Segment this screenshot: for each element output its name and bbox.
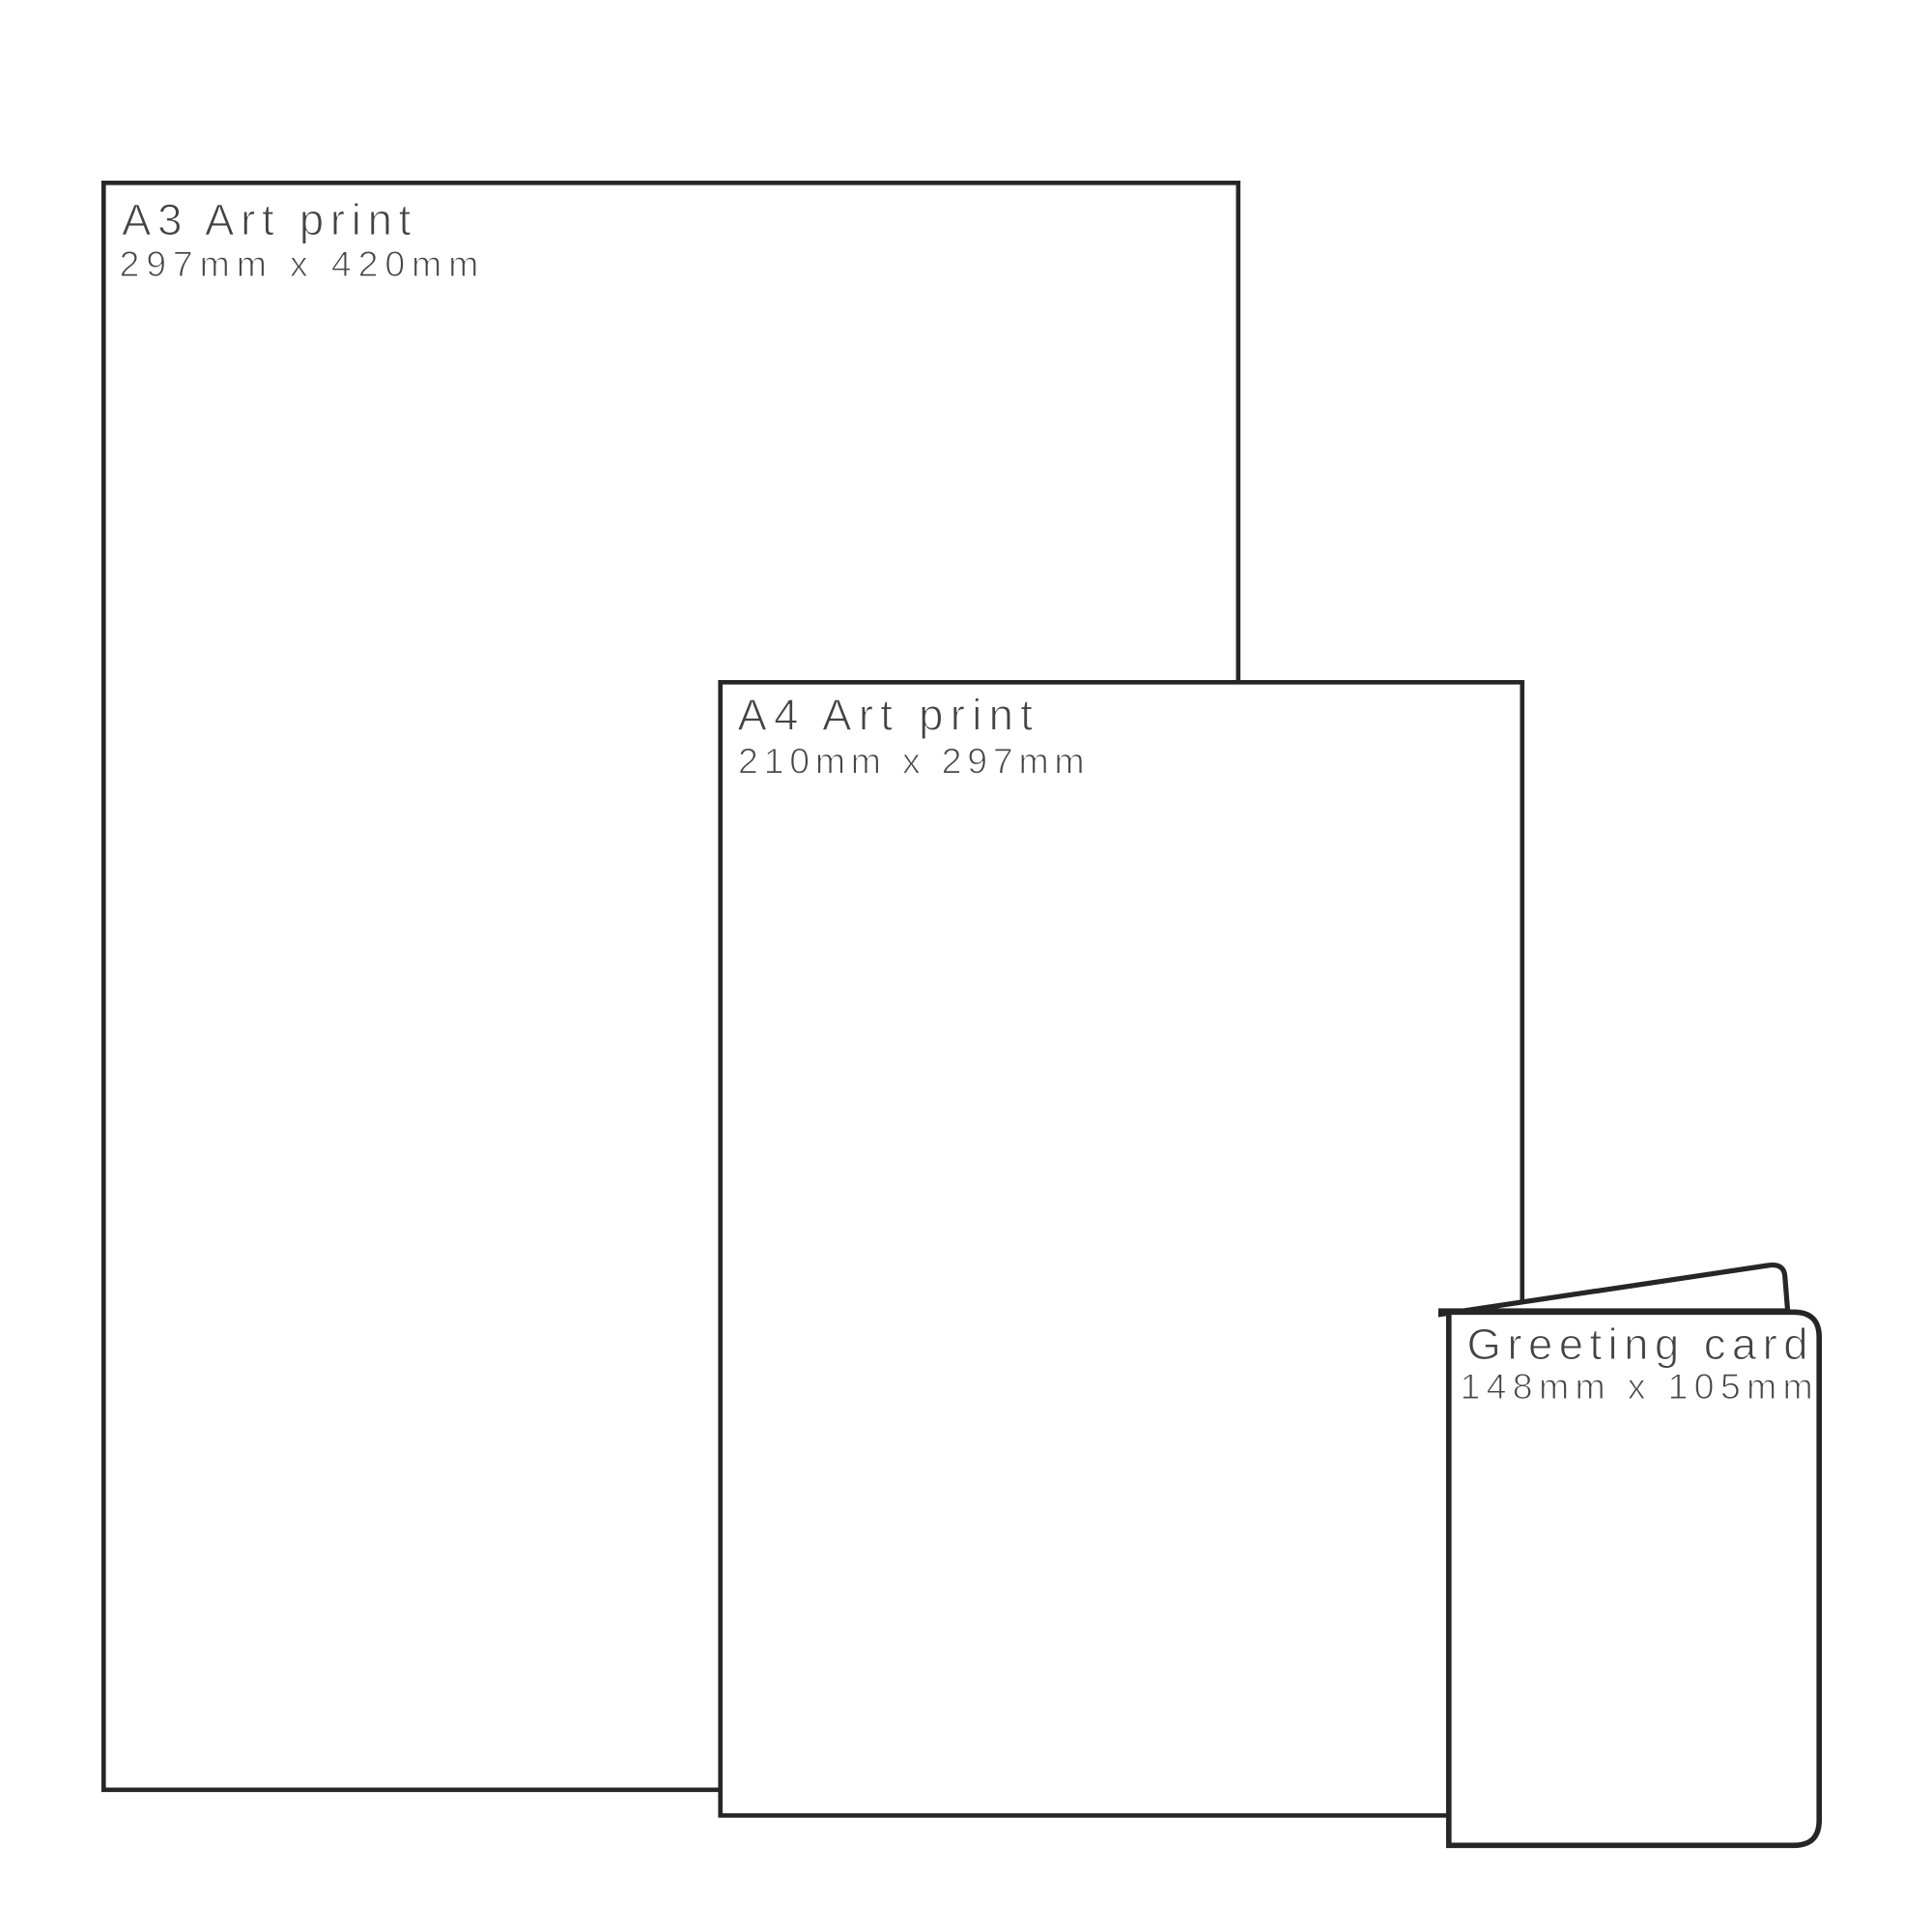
svg-text:A3 Art print: A3 Art print [122, 195, 417, 244]
svg-text:Greeting card: Greeting card [1467, 1320, 1815, 1369]
svg-text:297mm x 420mm: 297mm x 420mm [120, 243, 486, 284]
svg-text:148mm x 105mm: 148mm x 105mm [1461, 1366, 1820, 1406]
svg-text:A4 Art print: A4 Art print [738, 691, 1040, 740]
svg-text:210mm x 297mm: 210mm x 297mm [738, 740, 1090, 781]
